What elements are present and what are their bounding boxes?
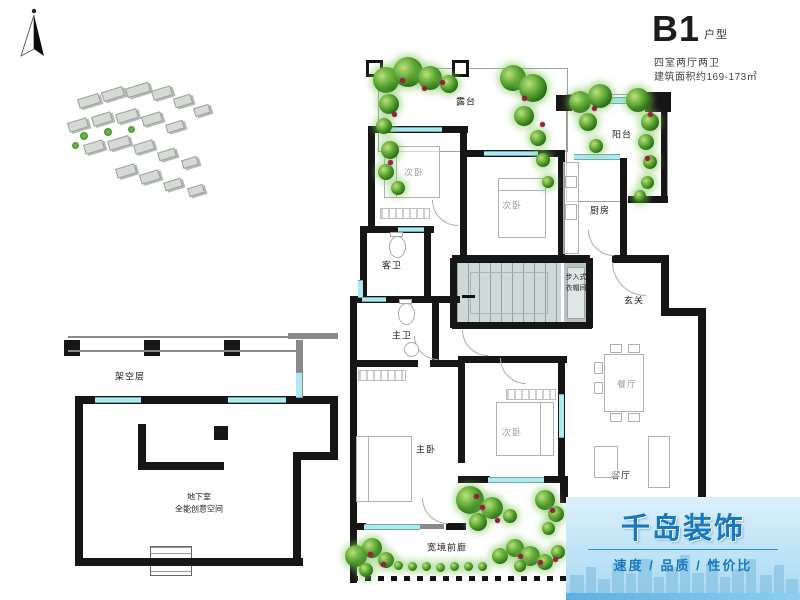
furniture — [594, 362, 603, 374]
furniture-line — [540, 402, 541, 456]
flower-dot — [495, 518, 500, 523]
flower-dot — [550, 508, 555, 513]
plant-bush — [588, 84, 612, 108]
furniture — [565, 176, 577, 188]
window — [228, 397, 286, 403]
wall-segment — [146, 462, 224, 470]
skyline-bar — [692, 573, 704, 593]
room-label-balcony: 阳台 — [612, 128, 632, 141]
brand-name: 千岛装饰 — [566, 505, 800, 547]
skyline-bar — [598, 579, 610, 593]
flower-dot — [474, 494, 479, 499]
room-label-front-porch: 宽境前廊 — [427, 541, 467, 554]
brand-tagline: 速度 / 品质 / 性价比 — [566, 555, 800, 574]
wall-segment — [368, 126, 375, 233]
window — [95, 397, 141, 403]
plant-bush — [379, 94, 399, 114]
plant-bush — [381, 141, 399, 159]
wall-segment — [330, 396, 338, 460]
toilet-tank — [399, 299, 412, 304]
wall-segment — [64, 340, 80, 356]
wall-segment — [446, 523, 466, 530]
porch-dashed-edge — [352, 576, 568, 581]
wardrobe — [380, 208, 430, 219]
plant-bush — [626, 88, 650, 112]
wall-segment — [661, 112, 667, 200]
plant-bush — [514, 106, 534, 126]
plant-bush — [359, 563, 373, 577]
flower-dot — [540, 122, 545, 127]
plant-bush — [579, 113, 597, 131]
room-label-master-bathroom: 主卫 — [392, 329, 412, 342]
plant-bush — [376, 118, 392, 134]
furniture — [628, 413, 640, 422]
room-label-master-bedroom: 主卧 — [416, 443, 436, 456]
plant-bush — [542, 522, 555, 535]
skyline-bar — [786, 579, 798, 593]
plant-bush — [456, 486, 484, 514]
flower-dot — [553, 557, 558, 562]
column — [452, 60, 469, 77]
wall-segment — [144, 340, 160, 356]
room-label-stilt-floor: 架空层 — [115, 370, 145, 383]
wardrobe — [506, 389, 556, 400]
door-arc — [500, 358, 526, 384]
wall-segment — [698, 308, 706, 498]
wall-segment — [424, 226, 431, 300]
skyline-bar — [626, 573, 636, 593]
plant-bush — [422, 562, 431, 571]
wall-segment — [458, 356, 465, 463]
window — [296, 372, 302, 398]
wall-segment — [430, 360, 460, 367]
window — [362, 297, 386, 302]
window — [390, 127, 442, 132]
railing-line — [288, 333, 338, 339]
furniture — [356, 436, 412, 502]
plant-bush — [503, 509, 517, 523]
wall-segment — [75, 558, 303, 566]
toilet-tank — [390, 232, 403, 237]
window — [488, 477, 544, 483]
flower-dot — [392, 112, 397, 117]
flower-dot — [388, 160, 393, 165]
plant-bush — [436, 563, 445, 572]
door-arc — [422, 498, 448, 524]
wall-segment — [214, 426, 228, 440]
flower-dot — [538, 560, 543, 565]
wall-segment — [620, 158, 627, 258]
door-leaf — [420, 524, 444, 529]
flower-dot — [522, 96, 527, 101]
wall-segment — [586, 258, 593, 328]
plant-bush — [641, 176, 654, 189]
room-label-basement-sub: 全能创意空间 — [175, 504, 223, 515]
logo-card: 千岛装饰 速度 / 品质 / 性价比 — [566, 497, 800, 600]
plant-bush — [464, 562, 473, 571]
toilet-icon — [389, 236, 406, 258]
door-arc — [612, 262, 646, 296]
plant-bush — [408, 562, 417, 571]
room-label-closet-1: 步入式 — [566, 272, 587, 282]
furniture — [604, 354, 644, 412]
furniture — [594, 382, 603, 394]
wall-segment — [452, 255, 590, 263]
furniture-line — [368, 436, 369, 502]
room-label-basement: 地下室 — [187, 492, 211, 503]
wall-segment — [293, 452, 301, 566]
sink-icon — [404, 342, 419, 357]
bottom-strip — [566, 593, 800, 600]
wall-segment — [460, 126, 467, 258]
plant-bush — [589, 139, 603, 153]
skyline-bar — [760, 575, 772, 593]
plant-bush — [634, 190, 646, 202]
plant-bush — [542, 176, 554, 188]
furniture — [610, 344, 622, 353]
plant-bush — [514, 560, 526, 572]
furniture — [610, 413, 622, 422]
wall-segment — [452, 322, 592, 329]
room-label-closet-2: 衣帽间 — [566, 283, 587, 293]
window — [559, 394, 564, 438]
furniture-line — [498, 190, 546, 191]
wall-segment — [138, 424, 146, 470]
plant-bush — [450, 562, 459, 571]
door-arc — [462, 330, 488, 356]
flower-dot — [368, 552, 373, 557]
furniture — [498, 178, 546, 238]
flower-dot — [400, 78, 405, 83]
flower-dot — [440, 80, 445, 85]
furniture — [648, 436, 670, 488]
furniture — [496, 402, 554, 456]
plant-bush — [638, 134, 654, 150]
window — [574, 154, 620, 160]
divider-line — [588, 549, 778, 550]
floor-plan-page: B1 户型 四室两厅两卫 建筑面积约169-173㎡ 露台 阳台 次卧 次卧 厨… — [0, 0, 800, 600]
plant-bush — [536, 153, 550, 167]
door-arc — [588, 230, 614, 256]
flower-dot — [518, 554, 523, 559]
window — [364, 524, 420, 530]
wall-segment — [224, 340, 240, 356]
furniture — [594, 446, 618, 478]
flower-dot — [381, 562, 386, 567]
flower-dot — [480, 505, 485, 510]
skyline-bar — [720, 577, 730, 593]
railing-line — [68, 350, 298, 352]
wall-segment — [458, 476, 490, 483]
plant-bush — [391, 181, 405, 195]
plant-bush — [530, 130, 546, 146]
wall-segment — [450, 258, 457, 328]
plant-bush — [478, 562, 487, 571]
flower-dot — [648, 112, 653, 117]
flower-dot — [592, 106, 597, 111]
room-label-kitchen: 厨房 — [590, 204, 610, 217]
window — [484, 151, 538, 156]
furniture — [628, 344, 640, 353]
railing-line — [68, 336, 298, 338]
plant-bush — [378, 164, 394, 180]
flower-dot — [422, 86, 427, 91]
plant-bush — [394, 561, 403, 570]
furniture — [565, 204, 577, 220]
window — [358, 280, 363, 298]
skyline-bar — [570, 575, 584, 593]
skyline-bar — [654, 577, 664, 593]
plant-bush — [469, 513, 487, 531]
wall-segment — [75, 396, 83, 566]
room-label-terrace: 露台 — [456, 95, 476, 108]
wall-segment — [661, 255, 669, 315]
stair-rail — [470, 272, 548, 314]
wardrobe — [358, 370, 406, 381]
wall-segment — [350, 360, 418, 367]
stair-arrow — [462, 295, 475, 298]
door-arc — [432, 200, 458, 226]
toilet-icon — [398, 303, 415, 325]
flower-dot — [645, 156, 650, 161]
room-label-guest-bathroom: 客卫 — [382, 259, 402, 272]
